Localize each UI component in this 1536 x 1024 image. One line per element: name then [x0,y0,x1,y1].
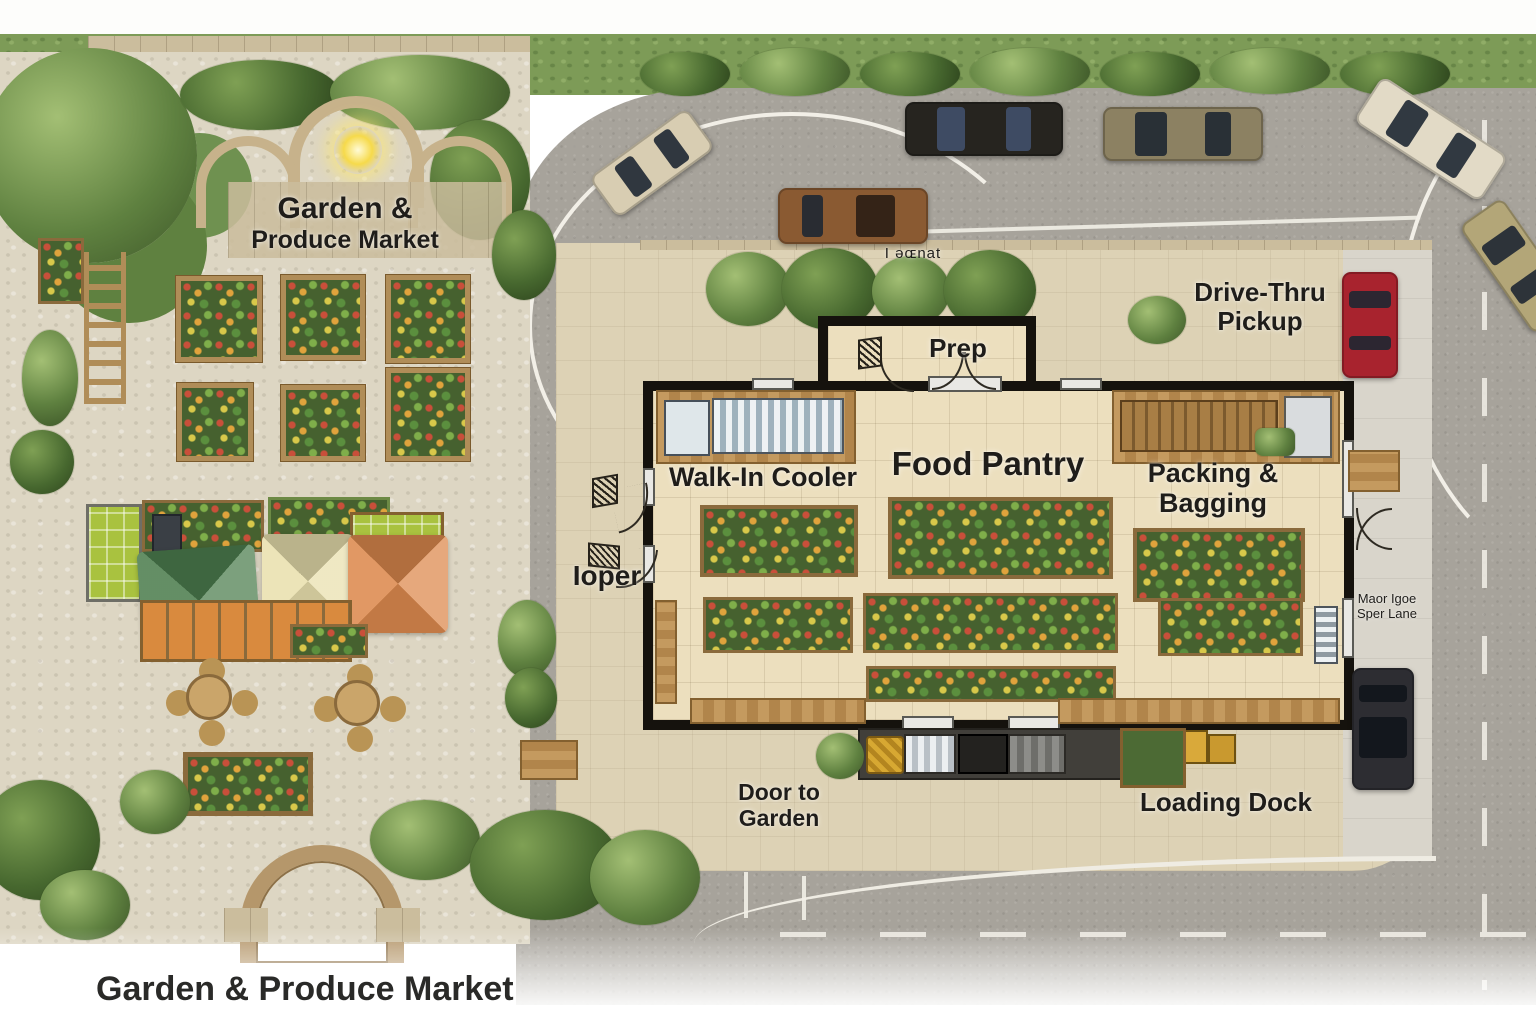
door-to-garden-line1: Door to [714,780,844,806]
planter [38,238,84,304]
garden-shrub [22,330,78,426]
dock-machine [958,734,1008,774]
dock-machine [1008,734,1066,774]
hedgerow [860,52,960,96]
door-hatch-icon [858,336,882,369]
stray-text-label: I əɶnat [858,246,968,263]
produce-stand [183,752,313,816]
patio-table [334,680,380,726]
food-pantry-label: Food Pantry [878,446,1098,483]
lane-line1: Maor Igoe [1342,592,1432,607]
window [752,378,794,390]
garden-sign-line1: Garden & [200,192,490,226]
plaza-shrub [816,733,864,779]
garden-bench [520,740,578,780]
door-to-garden-line2: Garden [714,806,844,832]
prep-label: Prep [908,334,1008,363]
walk-in-cooler-label: Walk-In Cooler [658,462,868,492]
indoor-plant [1255,428,1295,456]
raised-bed [176,276,262,362]
produce-crate [290,624,368,658]
hedgerow [640,52,730,96]
display-table [866,666,1116,702]
trellis [84,252,126,404]
garden-shrub [505,668,557,728]
packing-line1: Packing & [1118,458,1308,488]
garden-shrub [370,800,480,880]
bench-counter [690,698,866,724]
car-olive-sedan [1103,107,1263,161]
planter-box [1120,728,1186,788]
display-table [700,505,858,577]
plaza-curb [640,240,1432,250]
sunburst-icon [334,126,382,174]
hedgerow [740,48,850,96]
display-table [888,497,1113,579]
yellow-crate [1208,734,1236,764]
raised-bed [281,385,365,461]
entry-text-label: Ioper [552,560,662,591]
display-table [1158,598,1303,656]
hedgerow [970,48,1090,96]
site-plan-illustration: Garden & Produce Market Drive-Thru Picku… [0,0,1536,1024]
display-table [863,593,1118,653]
side-bench [655,600,677,704]
garden-shrub [492,210,556,300]
roller-rack [1314,606,1338,664]
loading-dock-label: Loading Dock [1136,788,1316,817]
lane-line2: Sper Lane [1342,607,1432,622]
hedgerow [1210,48,1330,94]
top-fade [0,0,1536,34]
drive-thru-line2: Pickup [1160,307,1360,336]
dock-machine [904,734,956,774]
car-dark-suv [1352,668,1414,790]
garden-shrub [590,830,700,925]
parking-stripe-1 [744,872,748,918]
display-table [703,597,853,653]
door-to-garden-label: Door to Garden [714,780,844,832]
garden-shrub [120,770,190,834]
garden-shrub [498,600,556,678]
hedge-shrub [706,252,790,326]
pickup-bench [1348,450,1400,492]
garden-sign-line2: Produce Market [200,226,490,254]
garden-sign-label: Garden & Produce Market [200,192,490,254]
drive-thru-label: Drive-Thru Pickup [1160,278,1360,336]
bottom-title: Garden & Produce Market [96,970,536,1008]
seedling-table [86,504,142,602]
bench-counter [1058,698,1340,724]
hedgerow [1100,52,1200,96]
display-table [1133,528,1305,602]
patio-table [186,674,232,720]
window [1060,378,1102,390]
raised-bed [177,383,253,461]
garden-shrub [10,430,74,494]
raised-bed [386,275,470,363]
drive-thru-line1: Drive-Thru [1160,278,1360,307]
hay-basket [866,736,904,774]
packing-bagging-label: Packing & Bagging [1118,458,1308,518]
packing-line2: Bagging [1118,488,1308,518]
car-black-sedan [905,102,1063,156]
raised-bed [281,275,365,360]
refrigerator [664,400,710,456]
orange-tent [348,535,448,633]
cooler-rack [712,398,844,454]
lane-text-label: Maor Igoe Sper Lane [1342,592,1432,621]
car-brown-suv [778,188,928,244]
raised-bed [386,368,470,461]
parking-stripe-2 [802,876,806,920]
